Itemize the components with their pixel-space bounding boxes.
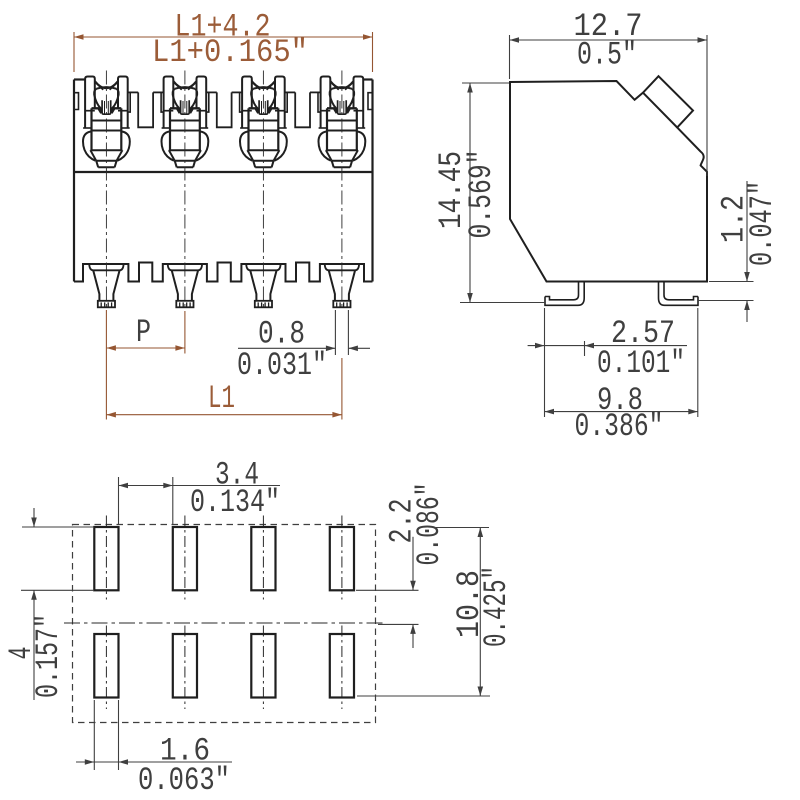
svg-text:0.063": 0.063" <box>138 762 230 799</box>
svg-text:0.134": 0.134" <box>190 484 280 521</box>
svg-text:0.031": 0.031" <box>237 347 327 384</box>
svg-text:0.101": 0.101" <box>597 345 685 382</box>
svg-text:L1+0.165": L1+0.165" <box>152 34 308 71</box>
svg-text:0.086": 0.086" <box>411 483 448 566</box>
svg-text:L1: L1 <box>208 380 235 417</box>
svg-text:0.047": 0.047" <box>744 181 781 266</box>
svg-text:0.425": 0.425" <box>478 566 515 647</box>
svg-text:0.5": 0.5" <box>577 37 637 74</box>
svg-text:0.157": 0.157" <box>30 614 67 698</box>
svg-text:P: P <box>136 314 151 351</box>
svg-text:0.386": 0.386" <box>575 408 664 445</box>
svg-text:0.569": 0.569" <box>463 150 500 239</box>
